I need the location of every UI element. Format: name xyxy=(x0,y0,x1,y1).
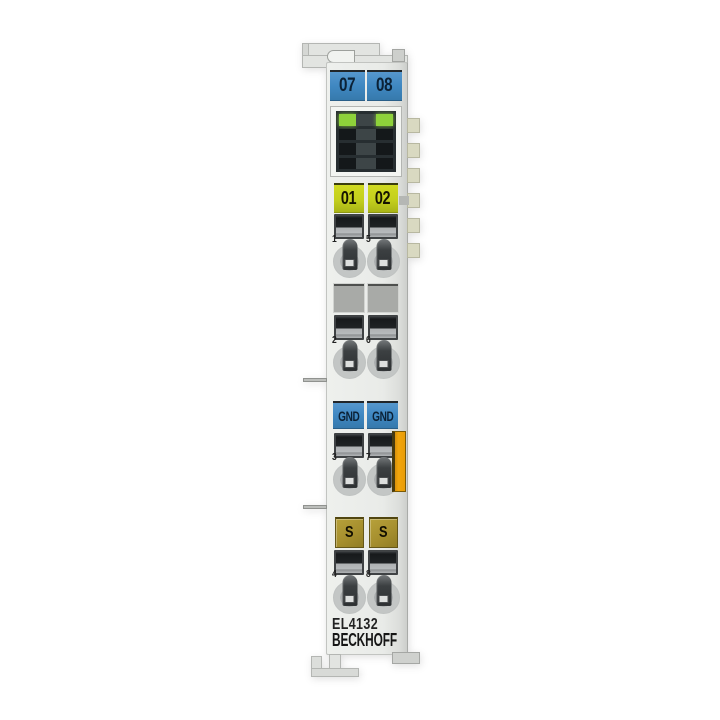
contact-pin-6 xyxy=(376,340,391,371)
contact-hole-5 xyxy=(367,245,400,278)
ebus-tab xyxy=(407,118,420,133)
label-02: 02 xyxy=(368,183,398,213)
label-07: 07 xyxy=(330,70,365,101)
led-separator xyxy=(356,129,376,141)
led-on xyxy=(339,114,356,126)
contact-number-8: 8 xyxy=(366,569,376,580)
pin-notch xyxy=(345,360,355,368)
contact-pin-2 xyxy=(342,340,357,371)
top-hook-block xyxy=(392,49,405,62)
label-s-right-text: S xyxy=(379,524,387,542)
led-off xyxy=(376,143,393,155)
product-image: 07 08 01 02 15263748 GND GND S S EL4132 … xyxy=(0,0,720,720)
contact-hole-3 xyxy=(333,463,366,496)
contact-number-7: 7 xyxy=(366,452,376,463)
label-08: 08 xyxy=(367,70,402,101)
bottom-foot-horizontal xyxy=(311,668,359,677)
led-grid xyxy=(336,111,396,172)
pin-notch xyxy=(345,477,355,485)
label-gnd-right: GND xyxy=(367,401,398,429)
contact-hole-2 xyxy=(333,346,366,379)
pin-notch xyxy=(379,360,389,368)
blank-plate-right xyxy=(368,284,398,312)
pin-notch xyxy=(345,595,355,603)
label-gnd-right-text: GND xyxy=(372,408,393,424)
contact-number-3: 3 xyxy=(332,452,342,463)
label-02-text: 02 xyxy=(375,188,390,209)
led-off xyxy=(339,129,356,141)
led-row xyxy=(339,143,393,155)
right-latch-notch xyxy=(399,196,409,205)
led-off xyxy=(376,158,393,170)
contact-pin-5 xyxy=(376,239,391,270)
led-window xyxy=(330,106,402,177)
label-01: 01 xyxy=(334,183,364,213)
left-contact-pin-upper xyxy=(303,378,327,382)
contact-number-6: 6 xyxy=(366,335,376,346)
orange-coding-tab xyxy=(392,431,406,492)
led-off xyxy=(339,158,356,170)
led-row xyxy=(339,158,393,170)
label-s-left-text: S xyxy=(345,524,353,542)
contact-number-5: 5 xyxy=(366,234,376,245)
left-contact-pin-lower xyxy=(303,505,327,509)
led-separator xyxy=(356,143,376,155)
contact-pin-1 xyxy=(342,239,357,270)
label-07-text: 07 xyxy=(339,75,355,97)
blank-plate-left xyxy=(334,284,364,312)
bottom-rail-step xyxy=(392,652,420,664)
contact-hole-6 xyxy=(367,346,400,379)
contact-number-1: 1 xyxy=(332,234,342,245)
pin-notch xyxy=(379,595,389,603)
ebus-tab xyxy=(407,168,420,183)
pin-notch xyxy=(379,259,389,267)
contact-number-4: 4 xyxy=(332,569,342,580)
ebus-tab xyxy=(407,143,420,158)
led-separator xyxy=(356,158,376,170)
label-s-left: S xyxy=(335,517,364,548)
led-off xyxy=(339,143,356,155)
pin-notch xyxy=(345,259,355,267)
label-gnd-left: GND xyxy=(333,401,364,429)
led-separator xyxy=(356,114,376,126)
contact-pin-3 xyxy=(342,457,357,488)
label-01-text: 01 xyxy=(341,188,356,209)
led-off xyxy=(376,129,393,141)
contact-pin-8 xyxy=(376,575,391,606)
contact-number-2: 2 xyxy=(332,335,342,346)
label-08-text: 08 xyxy=(376,75,392,97)
pin-notch xyxy=(379,477,389,485)
led-on xyxy=(376,114,393,126)
led-row xyxy=(339,114,393,126)
brand-logo: BECKHOFF xyxy=(332,630,397,651)
contact-pin-4 xyxy=(342,575,357,606)
contact-hole-4 xyxy=(333,581,366,614)
contact-hole-8 xyxy=(367,581,400,614)
ebus-tab xyxy=(407,218,420,233)
contact-hole-1 xyxy=(333,245,366,278)
led-row xyxy=(339,129,393,141)
bottom-foot-connector xyxy=(329,654,341,669)
label-gnd-left-text: GND xyxy=(338,408,359,424)
ebus-tab xyxy=(407,243,420,258)
label-s-right: S xyxy=(369,517,398,548)
contact-pin-7 xyxy=(376,457,391,488)
